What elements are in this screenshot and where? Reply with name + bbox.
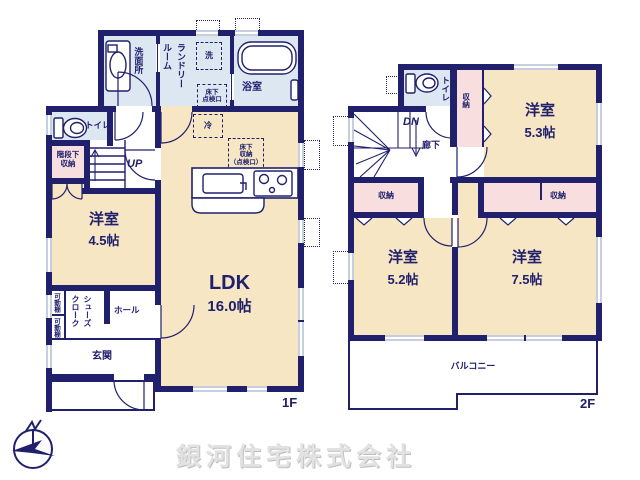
washer-label: 洗 [205, 51, 213, 60]
western-room-size: 4.5帖 [54, 234, 154, 249]
wall [46, 106, 116, 112]
window [298, 322, 304, 356]
underfloor-storage-box: 床下 収納 （点検口） [228, 138, 264, 172]
western-room-name: 洋室 [54, 211, 154, 228]
window [348, 118, 354, 142]
stairs-up-label: UP [127, 158, 142, 171]
bath-door-leaf [231, 74, 232, 100]
balcony-outline [349, 341, 597, 409]
window [46, 115, 52, 135]
room52-name: 洋室 [354, 249, 452, 266]
wall [46, 374, 114, 380]
shoe-closet-label: シューズ クローク [70, 295, 93, 327]
laundry-label: ランドリー ルーム [161, 43, 188, 88]
closet75-label: 収納 [520, 191, 596, 200]
balcony-label: バルコニー [349, 361, 597, 371]
movable-shelf-label-1: 可動棚 [52, 293, 59, 313]
hatch-line2: 点検口 [202, 96, 222, 103]
closet52-label: 収納 [354, 191, 418, 200]
underfloor-hatch-box: 床下 点検口 [197, 84, 227, 108]
window [298, 143, 304, 167]
entrance-step-line [52, 338, 158, 340]
window [385, 335, 424, 341]
fridge-label: 冷 [204, 121, 212, 130]
under-stair-storage-label: 階段下 収納 [50, 151, 86, 168]
room53-name: 洋室 [484, 102, 596, 119]
hallway-label: 廊下 [422, 140, 440, 150]
wall [452, 177, 602, 183]
washer-space-box: 洗 [196, 42, 222, 70]
wall [82, 188, 161, 194]
window [298, 288, 304, 320]
sliding-door-leaf [157, 44, 158, 72]
wall [46, 178, 90, 184]
wall [155, 338, 161, 392]
window [235, 30, 258, 36]
washroom-floor [104, 36, 156, 106]
room53-size: 5.3帖 [484, 126, 596, 141]
laundry-line1: ランドリー [175, 43, 188, 88]
wall [155, 386, 304, 392]
ufs-line2: 収納 [240, 151, 253, 158]
laundry-line2: ルーム [161, 43, 174, 88]
shoe-line1: シューズ [82, 295, 93, 327]
wall [98, 30, 104, 112]
washroom-label: 洗面所 [133, 47, 143, 74]
wall [398, 64, 602, 70]
room75-name: 洋室 [458, 249, 596, 266]
window [526, 335, 562, 341]
wall [398, 64, 404, 108]
floor1-label: 1F [282, 396, 297, 411]
bathroom-label: 浴室 [242, 82, 262, 94]
exterior-equipment-box [304, 218, 320, 247]
wall [450, 64, 457, 147]
wall [478, 212, 602, 218]
wall [348, 177, 424, 183]
room75-size: 7.5帖 [458, 273, 596, 288]
stairs-1f [90, 140, 125, 188]
closet53-floor [457, 70, 482, 147]
ldk-size: 16.0帖 [161, 298, 298, 315]
wall [64, 291, 66, 340]
compass-icon [12, 420, 55, 468]
toilet1-label: トイレ [85, 121, 111, 131]
wall [104, 291, 110, 324]
window [596, 237, 602, 303]
wall [234, 106, 304, 112]
window [46, 345, 52, 368]
floorplan-canvas: 洗 床下 点検口 冷 床下 収納 （点検口） [0, 0, 640, 480]
window [514, 64, 558, 70]
window [247, 386, 267, 392]
shelf-divider [52, 314, 64, 316]
entrance-label: 玄関 [92, 351, 112, 363]
western-room-doorway-floor [52, 184, 82, 194]
ldk-name: LDK [161, 272, 298, 295]
window [298, 220, 304, 243]
wall [452, 183, 458, 215]
window [596, 103, 602, 145]
closet53-label: 収納 [461, 93, 470, 108]
company-watermark: 銀河住宅株式会社 [176, 437, 416, 473]
ufs-line3: （点検口） [230, 159, 263, 166]
window [193, 386, 227, 392]
room53-floor [484, 70, 596, 177]
window [46, 238, 52, 272]
entrance-porch [46, 380, 155, 411]
wall [348, 212, 424, 218]
toilet2-label: トイレ [440, 76, 450, 102]
bathroom-floor [234, 36, 298, 106]
window [196, 30, 218, 36]
uss-line2: 収納 [50, 160, 86, 169]
wall [144, 374, 158, 380]
exterior-equipment-box [304, 140, 320, 170]
window [487, 335, 524, 341]
room52-size: 5.2帖 [354, 273, 452, 288]
movable-shelf-label-2: 可動棚 [52, 318, 59, 338]
floor2-label: 2F [580, 397, 595, 412]
stairs-down-label: DN [403, 116, 419, 129]
shoe-line2: クローク [70, 295, 81, 327]
room75-vestibule-floor [458, 183, 478, 218]
hall-label: ホール [114, 306, 140, 316]
fridge-space-box: 冷 [193, 114, 223, 138]
hatch-line1: 床下 [206, 89, 219, 96]
wall [348, 106, 426, 112]
wall [155, 112, 161, 148]
